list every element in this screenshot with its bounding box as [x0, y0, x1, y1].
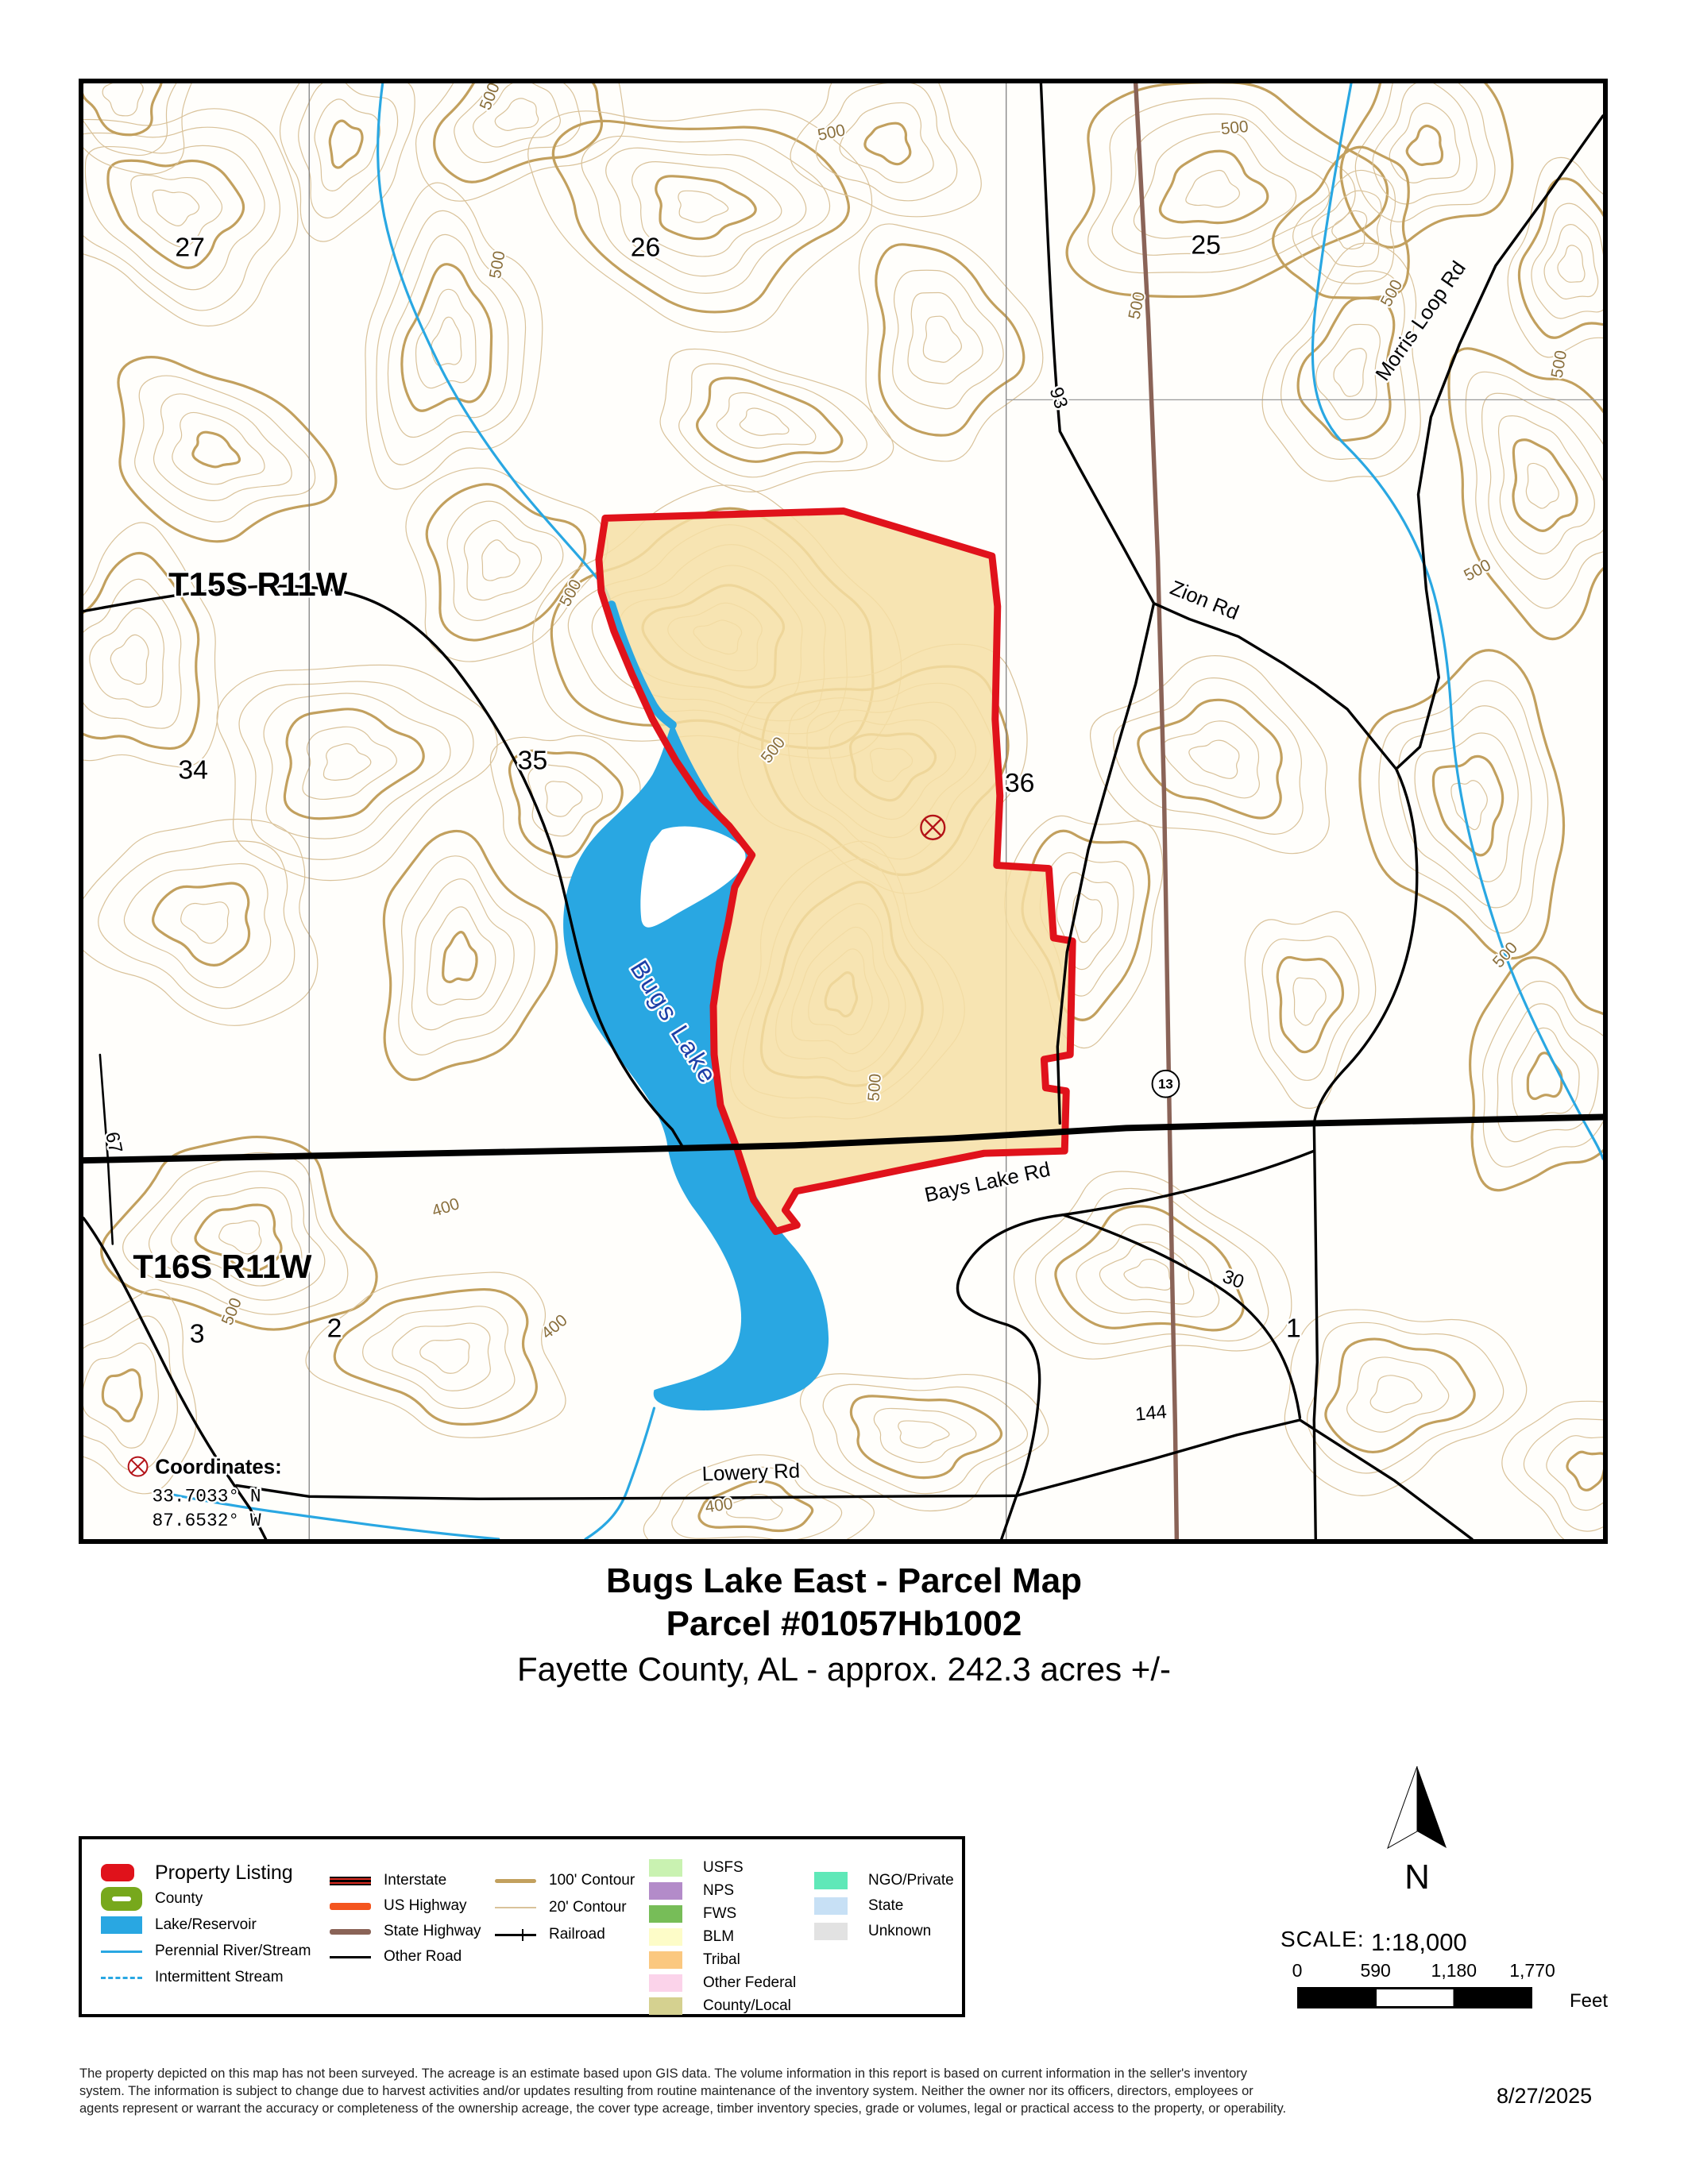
legend-box: Property ListingCountyLake/ReservoirPere… — [79, 1836, 965, 2017]
legend-item: NGO/Private — [814, 1871, 954, 1890]
legend-swatch-area-icon — [649, 1905, 682, 1923]
road-30 — [1063, 1215, 1300, 1418]
disclaimer-text: The property depicted on this map has no… — [79, 2065, 1501, 2117]
legend-swatch-area-icon — [649, 1997, 682, 2015]
legend-swatch-area-icon — [649, 1882, 682, 1900]
section-number-label: 25 — [1191, 230, 1221, 260]
scale-bar — [1297, 1987, 1532, 2008]
contour-elevation-label: 500 — [865, 1073, 885, 1102]
road-name-label: 67 — [101, 1130, 126, 1156]
legend-swatch-parcel-icon — [101, 1864, 134, 1881]
road-name-label: 93 — [1045, 384, 1072, 411]
contour-elevation-label: 500 — [486, 249, 509, 280]
legend-item-label: County/Local — [703, 1997, 791, 2015]
scale-tick-label: 1,180 — [1431, 1960, 1477, 1981]
legend-swatch-area-icon — [649, 1859, 682, 1877]
stream-lake-outlet — [585, 1408, 654, 1539]
title-block: Bugs Lake East - Parcel Map Parcel #0105… — [0, 1560, 1688, 1693]
legend-item: County/Local — [649, 1997, 796, 2016]
legend-item-label: Railroad — [549, 1926, 605, 1943]
road-name-label: Zion Rd — [1167, 577, 1242, 624]
highway-13-shield-number: 13 — [1158, 1077, 1173, 1092]
legend-item: Tribal — [649, 1951, 796, 1970]
road-south-branch — [1002, 1495, 1017, 1539]
contour-elevation-label: 500 — [1377, 276, 1407, 310]
road-name-label: Lowery Rd — [701, 1460, 800, 1485]
road-name-label: Morris Loop Rd — [1372, 257, 1470, 385]
road-93 — [1041, 83, 1416, 1539]
contour-elevation-label: 500 — [1548, 349, 1571, 379]
legend-swatch-bar-icon — [330, 1903, 371, 1910]
legend-item-label: US Highway — [384, 1897, 467, 1915]
coordinates-lat: 33.7033° N — [152, 1486, 261, 1507]
legend-swatch-lake-icon — [101, 1916, 142, 1934]
township-range-label: T16S R11W — [133, 1248, 312, 1285]
legend-column-federal: USFSNPSFWSBLMTribalOther FederalCounty/L… — [649, 1858, 796, 2016]
legend-swatch-interstate-icon — [330, 1877, 371, 1885]
legend-item: NPS — [649, 1881, 796, 1900]
legend-item-label: 20' Contour — [549, 1899, 627, 1916]
coordinates-crosshair-icon — [129, 1457, 148, 1476]
legend-swatch-dash-icon — [101, 1977, 142, 1979]
legend-item-label: Property Listing — [155, 1862, 293, 1885]
coordinates-lon: 87.6532° W — [152, 1511, 261, 1531]
legend-item-label: Unknown — [868, 1923, 931, 1940]
contour-elevation-label: 500 — [1220, 118, 1250, 139]
legend-swatch-thin-icon — [495, 1907, 536, 1908]
legend-swatch-area-icon — [649, 1928, 682, 1946]
legend-item-label: NPS — [703, 1882, 734, 1900]
legend-swatch-line-icon — [330, 1956, 371, 1958]
legend-swatch-bar-icon — [495, 1879, 536, 1883]
legend-swatch-area-icon — [814, 1872, 848, 1889]
legend-item-label: 100' Contour — [549, 1872, 635, 1889]
map-title: Bugs Lake East - Parcel Map — [0, 1560, 1688, 1603]
highway-13-shield: 13 — [1153, 1071, 1180, 1098]
township-range-label: T15S R11W — [168, 565, 348, 603]
legend-item: Other Federal — [649, 1974, 796, 1993]
disclaimer-line: system. The information is subject to ch… — [79, 2082, 1501, 2100]
legend-item-label: State — [868, 1897, 903, 1915]
morris-loop-rd — [1398, 116, 1603, 768]
legend-item: US Highway — [330, 1897, 481, 1916]
scale-label: SCALE: — [1280, 1927, 1365, 1952]
legend-item: Lake/Reservoir — [101, 1916, 311, 1935]
legend-item-label: Interstate — [384, 1872, 446, 1889]
legend-item-label: FWS — [703, 1905, 736, 1923]
legend-item-label: Other Road — [384, 1948, 462, 1966]
legend-item: Other Road — [330, 1947, 481, 1966]
scale-tick-label: 1,770 — [1509, 1960, 1555, 1981]
disclaimer-line: agents represent or warrant the accuracy… — [79, 2100, 1501, 2117]
section-number-label: 34 — [178, 754, 208, 785]
road-name-label: 144 — [1134, 1401, 1168, 1425]
legend-swatch-rail-icon — [495, 1934, 536, 1936]
road-name-label: Bays Lake Rd — [923, 1159, 1053, 1207]
legend-item: State Highway — [330, 1922, 481, 1941]
legend-column-roads: InterstateUS HighwayState HighwayOther R… — [330, 1871, 481, 1966]
legend-item: BLM — [649, 1927, 796, 1947]
topo-map-svg: 13 Coordinates: 33.7033° N 87.6532° W 50… — [83, 83, 1603, 1539]
legend-column-contours: 100' Contour20' ContourRailroad — [495, 1871, 635, 1944]
legend-item-label: County — [155, 1890, 203, 1908]
scale-tick-label: 590 — [1360, 1960, 1390, 1981]
road-144-southeast — [1300, 1420, 1472, 1539]
legend-item-label: Perennial River/Stream — [155, 1943, 311, 1960]
section-number-label: 26 — [631, 233, 661, 263]
legend-item-label: USFS — [703, 1859, 744, 1877]
north-arrow: N — [1382, 1752, 1454, 1903]
section-number-label: 3 — [190, 1319, 205, 1349]
section-number-label: 35 — [518, 745, 548, 775]
scale-tick-label: 0 — [1292, 1960, 1303, 1981]
legend-item-label: Lake/Reservoir — [155, 1916, 257, 1934]
legend-item-label: Other Federal — [703, 1974, 796, 1992]
contour-elevation-label: 400 — [430, 1194, 462, 1221]
parcel-map-page: 13 Coordinates: 33.7033° N 87.6532° W 50… — [0, 0, 1688, 2184]
legend-item: Property Listing — [101, 1863, 311, 1882]
legend-item-label: Intermittent Stream — [155, 1969, 284, 1986]
legend-item: Intermittent Stream — [101, 1968, 311, 1987]
legend-item: FWS — [649, 1904, 796, 1924]
section-number-label: 36 — [1005, 768, 1035, 798]
section-number-label: 27 — [175, 233, 205, 263]
contour-elevation-label: 400 — [704, 1495, 734, 1517]
north-arrow-label: N — [1404, 1858, 1430, 1897]
legend-item: USFS — [649, 1858, 796, 1877]
county-acreage: Fayette County, AL - approx. 242.3 acres… — [0, 1646, 1688, 1693]
disclaimer-line: The property depicted on this map has no… — [79, 2065, 1501, 2082]
section-number-label: 2 — [327, 1314, 342, 1344]
legend-item-label: State Highway — [384, 1923, 481, 1940]
section-number-label: 1 — [1286, 1314, 1301, 1344]
contour-elevation-label: 500 — [816, 121, 847, 145]
legend-item: State — [814, 1897, 954, 1916]
legend-swatch-county-icon — [101, 1887, 142, 1911]
legend-item: 100' Contour — [495, 1871, 635, 1890]
legend-swatch-area-icon — [814, 1923, 848, 1940]
legend-swatch-line-icon — [101, 1951, 142, 1953]
coordinates-title: Coordinates: — [155, 1457, 281, 1479]
legend-item-label: Tribal — [703, 1951, 740, 1969]
legend-item: Railroad — [495, 1925, 635, 1944]
coordinates-block: Coordinates: 33.7033° N 87.6532° W — [129, 1457, 282, 1532]
legend-item: 20' Contour — [495, 1898, 635, 1917]
map-canvas: 13 Coordinates: 33.7033° N 87.6532° W 50… — [79, 79, 1608, 1544]
lowery-rd — [237, 1420, 1300, 1499]
contour-elevation-label: 500 — [1461, 556, 1494, 585]
legend-swatch-bar-icon — [330, 1929, 371, 1935]
legend-column-other-owners: NGO/PrivateStateUnknown — [814, 1871, 954, 1941]
legend-item: County — [101, 1889, 311, 1908]
legend-swatch-area-icon — [649, 1974, 682, 1992]
legend-item-label: NGO/Private — [868, 1872, 954, 1889]
parcel-number: Parcel #01057Hb1002 — [0, 1603, 1688, 1646]
scale-unit: Feet — [1570, 1990, 1608, 2012]
legend-item: Unknown — [814, 1922, 954, 1941]
legend-swatch-area-icon — [649, 1951, 682, 1969]
legend-swatch-area-icon — [814, 1897, 848, 1915]
contour-elevation-label: 400 — [538, 1311, 570, 1343]
legend-item: Perennial River/Stream — [101, 1942, 311, 1961]
map-date: 8/27/2025 — [1497, 2084, 1592, 2109]
scale-ratio: 1:18,000 — [1371, 1928, 1467, 1957]
legend-item: Interstate — [330, 1871, 481, 1890]
legend-column-listing: Property ListingCountyLake/ReservoirPere… — [101, 1863, 311, 1987]
scale-bar-ticks: 05901,1801,770 — [1297, 1960, 1532, 1981]
legend-item-label: BLM — [703, 1928, 734, 1946]
